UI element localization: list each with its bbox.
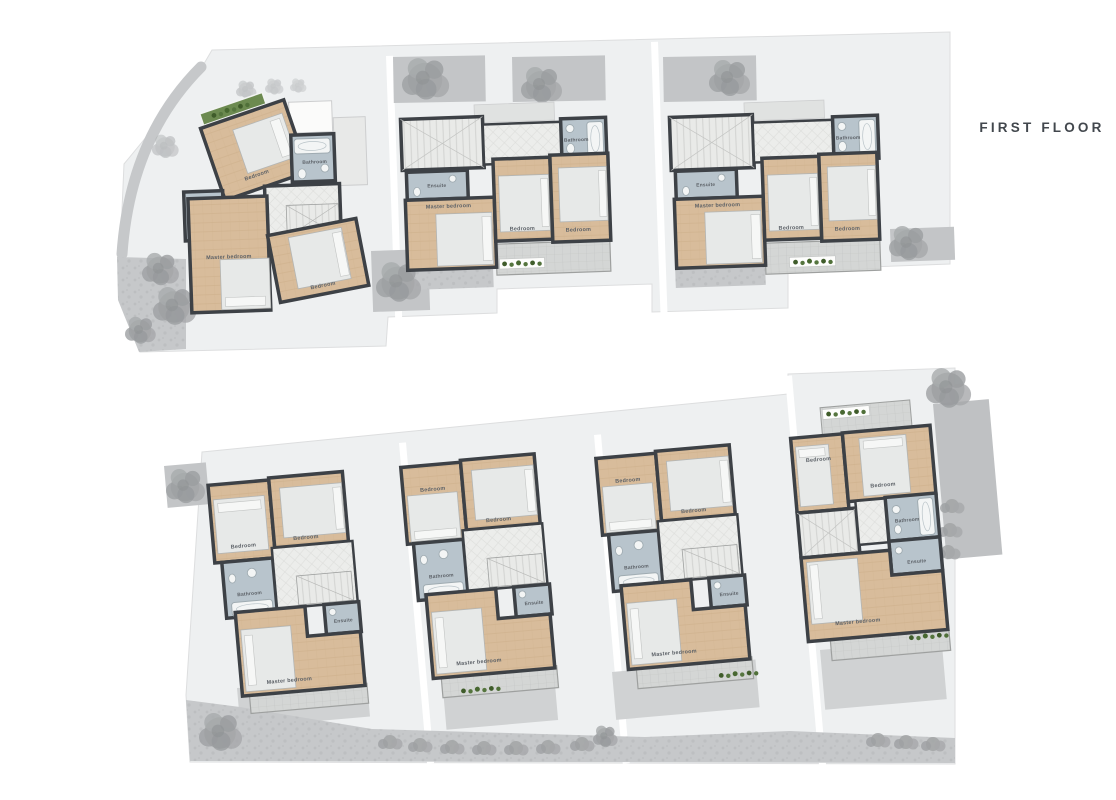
- villa-4-ensuite-floor: [324, 602, 361, 635]
- sink-icon: [247, 568, 257, 578]
- villa-1-bedroom-2: Bedroom: [267, 218, 368, 302]
- site-plan-svg: Bedroom Bathroom Ensuite Master bedroom …: [0, 0, 1116, 800]
- pillow: [541, 178, 550, 226]
- bathtub: [587, 121, 604, 156]
- tree-icon: [926, 368, 971, 408]
- pillow: [225, 296, 265, 306]
- room-label: Ensuite: [427, 183, 446, 190]
- pillow: [482, 216, 493, 260]
- room-label: Ensuite: [696, 182, 715, 189]
- room-label: Bathroom: [302, 159, 327, 166]
- villa-7-ensuite-floor: [889, 537, 943, 575]
- sink-icon: [439, 549, 449, 559]
- sink-icon: [718, 174, 725, 181]
- sink-icon: [329, 608, 337, 616]
- room-label: Bedroom: [566, 227, 592, 234]
- toilet-icon: [566, 143, 574, 153]
- pillow: [810, 177, 819, 225]
- bathtub: [294, 138, 331, 154]
- sink-icon: [892, 505, 901, 514]
- toilet-icon: [420, 555, 428, 565]
- sink-icon: [321, 164, 329, 172]
- bathtub: [859, 119, 876, 154]
- room-label: Bedroom: [779, 225, 805, 232]
- sink-icon: [449, 175, 456, 182]
- roof-slab: [744, 100, 825, 121]
- roof-slab: [474, 102, 555, 123]
- toilet-icon: [838, 141, 846, 151]
- site-plan-canvas: Bedroom Bathroom Ensuite Master bedroom …: [0, 0, 1116, 800]
- toilet-icon: [228, 574, 236, 584]
- sink-icon: [714, 582, 722, 590]
- villa-2: Bathroom Ensuite Master bedroom Bedroom …: [400, 100, 612, 278]
- toilet-icon: [298, 169, 306, 179]
- bathtub: [917, 497, 935, 535]
- pillow: [598, 170, 607, 216]
- room-label: Bathroom: [564, 137, 589, 144]
- sink-icon: [518, 591, 526, 599]
- pillow: [867, 169, 876, 215]
- room-label: Bedroom: [835, 226, 861, 233]
- villa-7: Bedroom Bedroom Bathroom Ensuite Master …: [788, 398, 951, 662]
- roof-slab: [333, 117, 367, 186]
- room-label: Bedroom: [510, 226, 536, 233]
- villa-3: Bathroom Ensuite Master bedroom Bedroom …: [669, 98, 883, 277]
- toilet-icon: [894, 525, 902, 535]
- sink-icon: [895, 547, 903, 555]
- floor-title: FIRST FLOOR: [979, 120, 1104, 135]
- room-label: Bathroom: [836, 135, 861, 142]
- pillow: [751, 214, 762, 258]
- sink-icon: [566, 124, 574, 132]
- balcony: [496, 240, 611, 275]
- toilet-icon: [413, 187, 420, 196]
- villa-6-ensuite-floor: [709, 575, 747, 608]
- sink-icon: [838, 122, 846, 130]
- toilet-icon: [682, 186, 689, 195]
- toilet-icon: [615, 546, 623, 556]
- sink-icon: [634, 540, 644, 550]
- villa-5-ensuite-floor: [514, 584, 552, 617]
- villa-7-landing-floor: [855, 498, 889, 544]
